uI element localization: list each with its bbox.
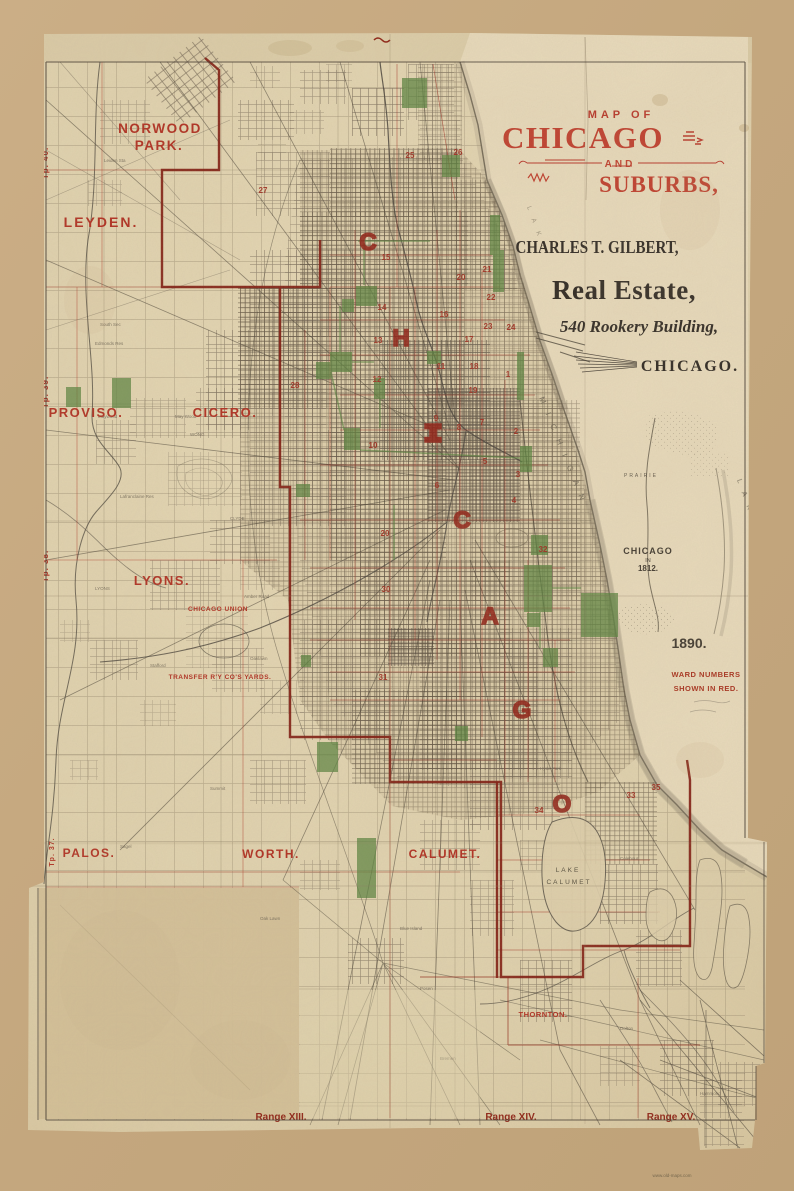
svg-text:www.old-maps.com: www.old-maps.com bbox=[652, 1173, 691, 1178]
